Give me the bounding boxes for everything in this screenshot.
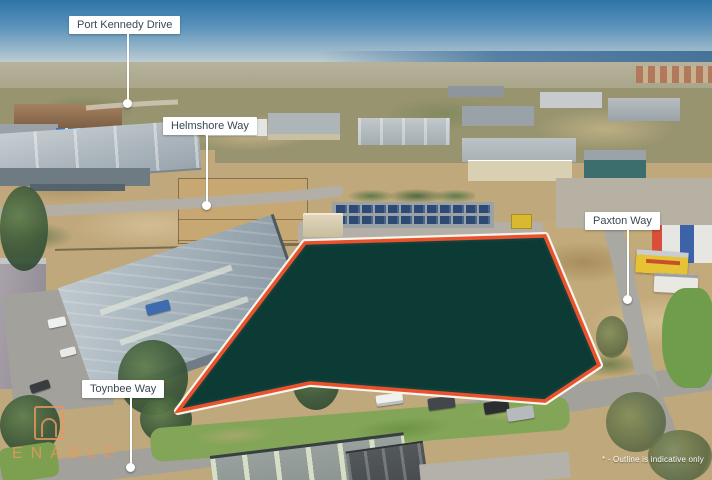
street-label-toynbee-way: Toynbee Way	[82, 380, 164, 398]
enable-watermark: ENABLE	[10, 406, 123, 463]
leader-line-paxton-way	[627, 230, 629, 300]
street-label-helmshore-way: Helmshore Way	[163, 117, 257, 135]
aerial-property-photo: Port Kennedy Drive Helmshore Way Paxton …	[0, 0, 712, 480]
location-dot-paxton-way	[623, 295, 632, 304]
enable-watermark-text: ENABLE	[10, 445, 123, 463]
leader-line-port-kennedy-drive	[127, 34, 129, 104]
enable-logo-arch	[41, 418, 57, 437]
location-dot-toynbee-way	[126, 463, 135, 472]
leader-line-helmshore-way	[206, 135, 208, 206]
street-label-paxton-way: Paxton Way	[585, 212, 660, 230]
leader-line-toynbee-way	[130, 398, 132, 468]
enable-logo-icon	[34, 406, 64, 440]
street-label-port-kennedy-drive: Port Kennedy Drive	[69, 16, 180, 34]
location-dot-port-kennedy-drive	[123, 99, 132, 108]
outline-disclaimer: * - Outline is indicative only	[602, 455, 704, 464]
location-dot-helmshore-way	[202, 201, 211, 210]
